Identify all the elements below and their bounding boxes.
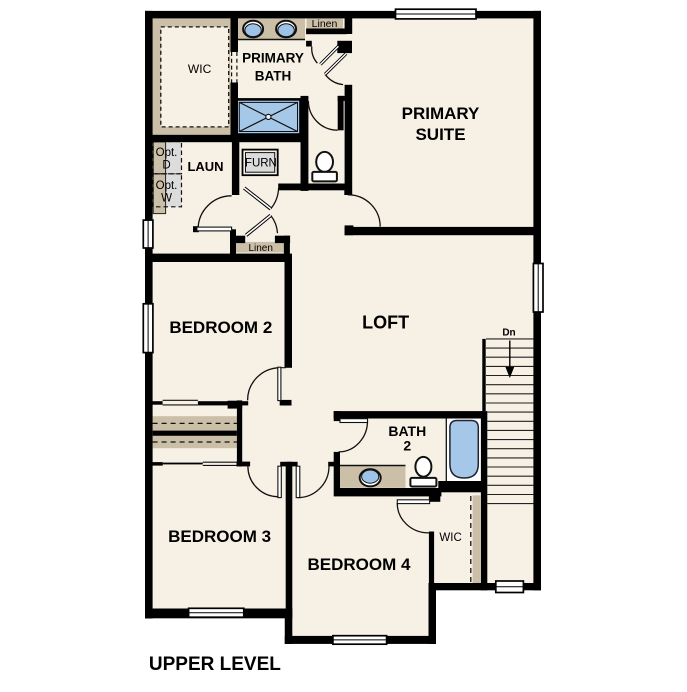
svg-text:Opt.: Opt. (156, 180, 178, 192)
svg-text:Linen: Linen (312, 18, 338, 30)
svg-text:FURN: FURN (245, 158, 277, 170)
svg-text:W: W (161, 192, 172, 204)
svg-text:SUITE: SUITE (415, 125, 465, 144)
svg-text:BEDROOM 4: BEDROOM 4 (308, 555, 412, 574)
svg-text:BEDROOM 3: BEDROOM 3 (168, 527, 271, 546)
svg-text:Opt.: Opt. (156, 147, 178, 159)
svg-text:Linen: Linen (248, 243, 272, 254)
svg-text:LAUN: LAUN (187, 159, 223, 174)
svg-text:LOFT: LOFT (362, 312, 409, 332)
svg-text:WIC: WIC (188, 62, 212, 76)
svg-text:WIC: WIC (439, 532, 461, 544)
svg-text:PRIMARY: PRIMARY (402, 104, 480, 123)
svg-text:BEDROOM 2: BEDROOM 2 (169, 318, 272, 337)
svg-text:UPPER LEVEL: UPPER LEVEL (149, 654, 281, 675)
svg-text:D: D (162, 159, 170, 171)
svg-text:PRIMARY: PRIMARY (242, 51, 304, 66)
svg-text:BATH: BATH (255, 69, 292, 84)
svg-text:BATH: BATH (388, 423, 426, 439)
svg-text:2: 2 (403, 438, 411, 454)
svg-text:Dn: Dn (502, 328, 515, 339)
